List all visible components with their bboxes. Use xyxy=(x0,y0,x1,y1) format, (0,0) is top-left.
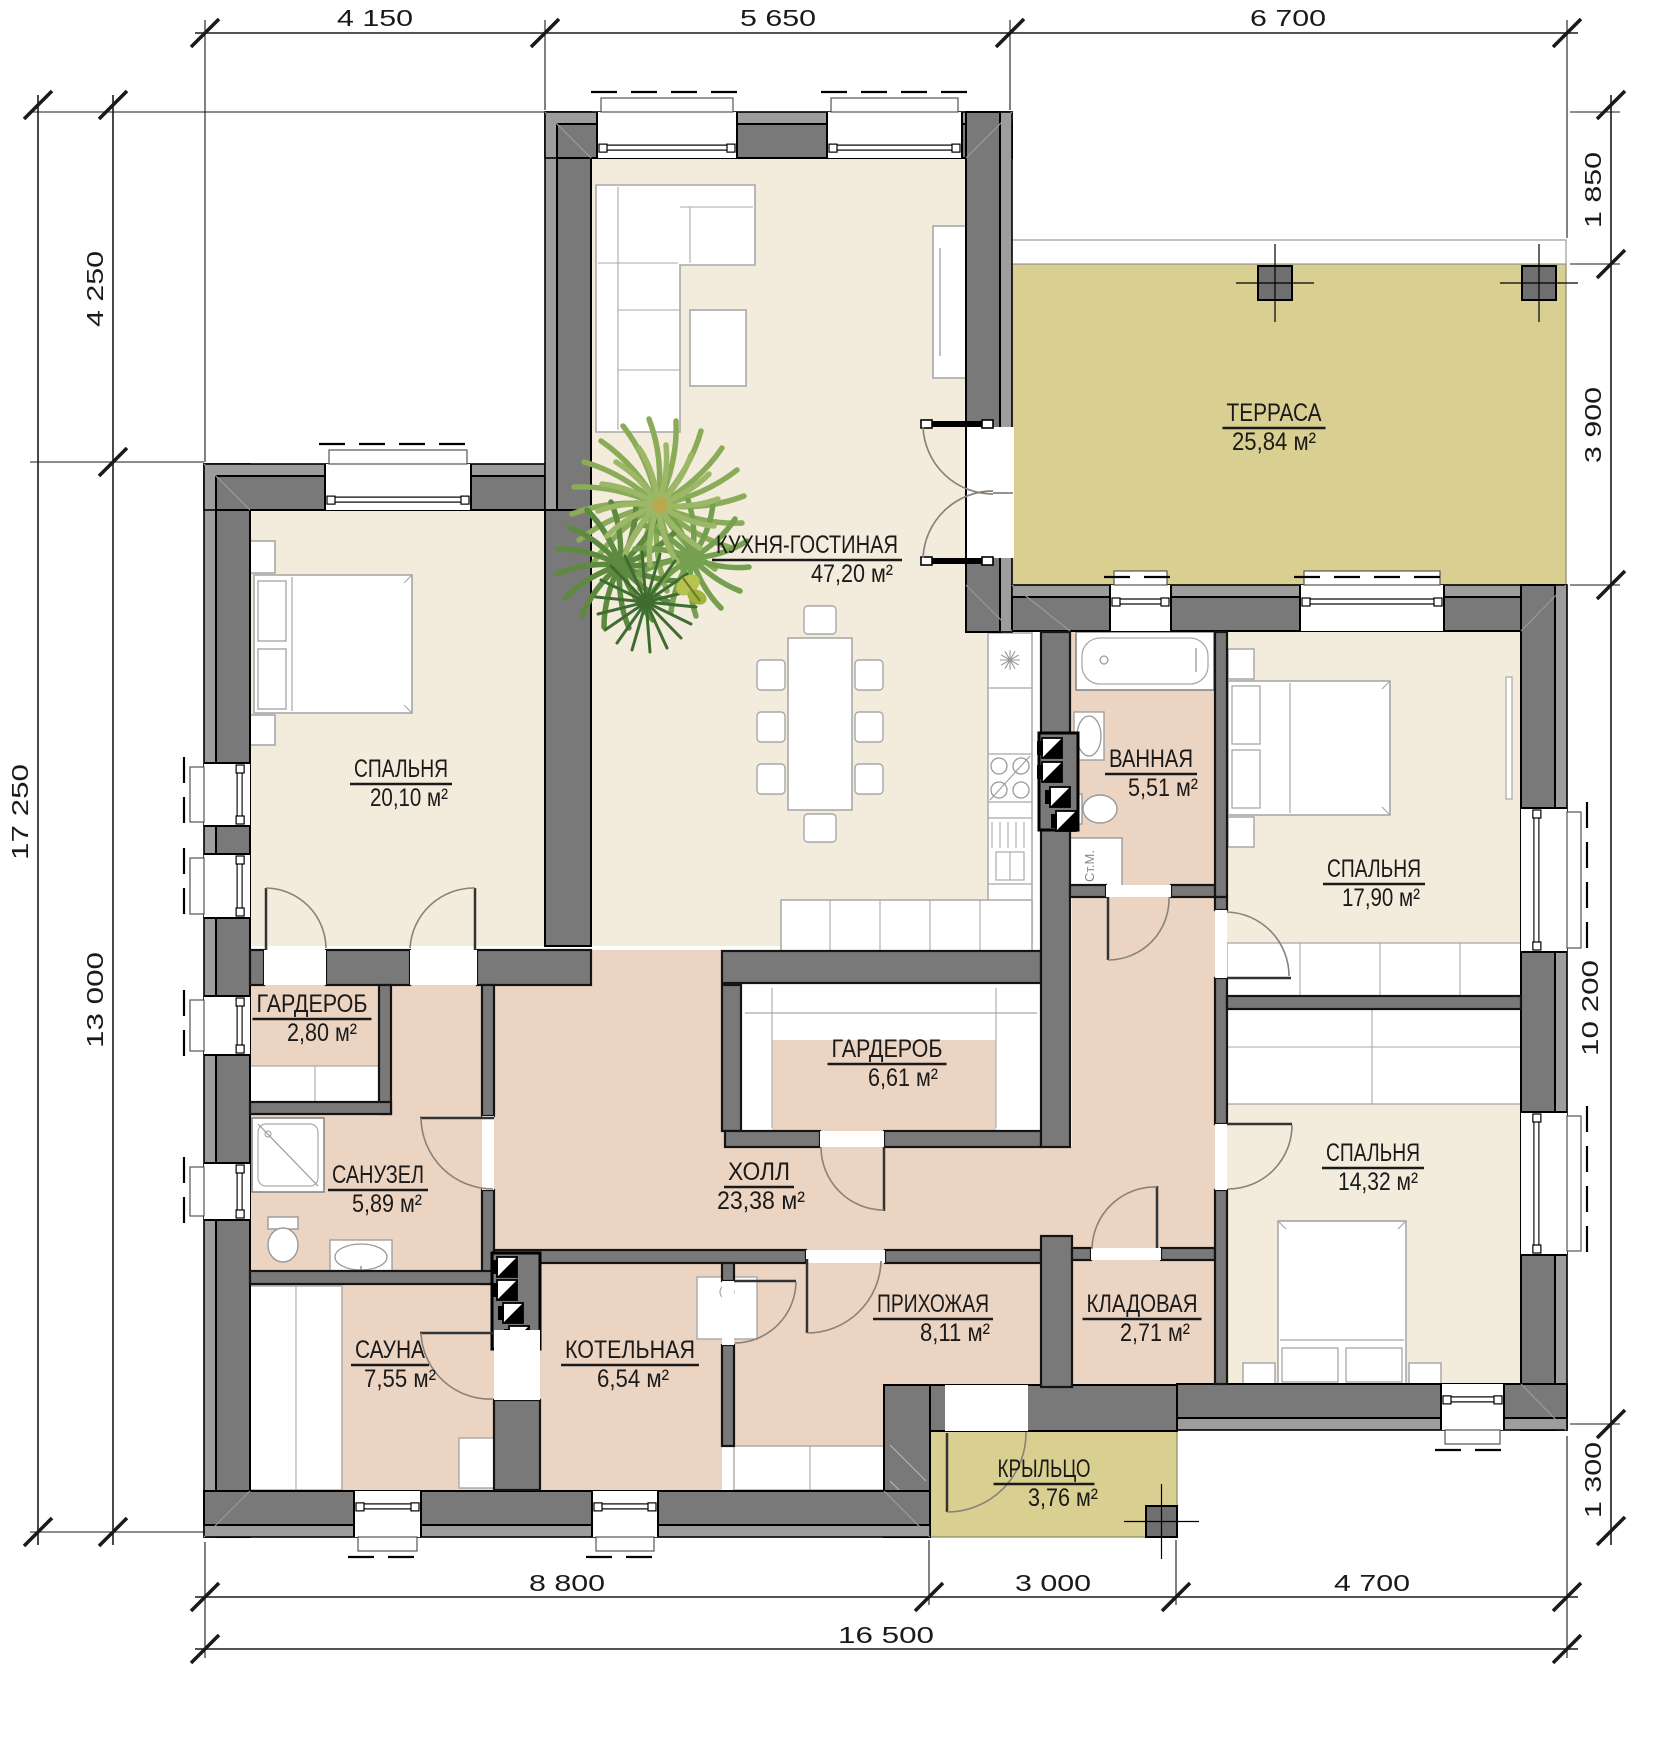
svg-text:8 800: 8 800 xyxy=(529,1570,605,1596)
svg-text:СПАЛЬНЯ: СПАЛЬНЯ xyxy=(354,755,448,783)
svg-text:7,55 м²: 7,55 м² xyxy=(364,1365,436,1393)
svg-text:4 700: 4 700 xyxy=(1334,1570,1410,1596)
svg-text:КОТЕЛЬНАЯ: КОТЕЛЬНАЯ xyxy=(565,1336,695,1364)
svg-text:6,61 м²: 6,61 м² xyxy=(868,1064,938,1092)
svg-text:25,84 м²: 25,84 м² xyxy=(1232,428,1316,456)
svg-text:СПАЛЬНЯ: СПАЛЬНЯ xyxy=(1327,855,1421,883)
svg-text:17 250: 17 250 xyxy=(7,764,33,860)
svg-text:ПРИХОЖАЯ: ПРИХОЖАЯ xyxy=(877,1290,989,1318)
svg-text:5 650: 5 650 xyxy=(740,5,816,31)
svg-text:СПАЛЬНЯ: СПАЛЬНЯ xyxy=(1326,1139,1420,1167)
svg-text:10 200: 10 200 xyxy=(1577,960,1603,1056)
svg-text:2,71 м²: 2,71 м² xyxy=(1120,1319,1190,1347)
svg-text:ТЕРРАСА: ТЕРРАСА xyxy=(1227,399,1322,427)
svg-text:ХОЛЛ: ХОЛЛ xyxy=(728,1158,790,1186)
svg-text:САНУЗЕЛ: САНУЗЕЛ xyxy=(332,1161,424,1189)
svg-text:САУНА: САУНА xyxy=(355,1336,425,1364)
svg-text:3 000: 3 000 xyxy=(1015,1570,1091,1596)
svg-text:8,11 м²: 8,11 м² xyxy=(920,1319,990,1347)
svg-text:Ст.М.: Ст.М. xyxy=(1082,850,1097,882)
svg-text:КЛАДОВАЯ: КЛАДОВАЯ xyxy=(1087,1290,1198,1318)
svg-text:14,32 м²: 14,32 м² xyxy=(1338,1168,1418,1196)
svg-text:1 850: 1 850 xyxy=(1580,152,1606,228)
svg-text:3 900: 3 900 xyxy=(1580,387,1606,463)
svg-text:6 700: 6 700 xyxy=(1250,5,1326,31)
svg-text:ГАРДЕРОБ: ГАРДЕРОБ xyxy=(257,990,368,1018)
svg-text:6,54 м²: 6,54 м² xyxy=(597,1365,669,1393)
svg-text:ГАРДЕРОБ: ГАРДЕРОБ xyxy=(832,1035,943,1063)
svg-text:КУХНЯ-ГОСТИНАЯ: КУХНЯ-ГОСТИНАЯ xyxy=(716,531,898,559)
svg-text:13 000: 13 000 xyxy=(82,952,108,1048)
svg-text:2,80 м²: 2,80 м² xyxy=(287,1019,357,1047)
svg-text:20,10 м²: 20,10 м² xyxy=(370,784,448,812)
svg-text:5,89 м²: 5,89 м² xyxy=(352,1190,422,1218)
svg-text:47,20 м²: 47,20 м² xyxy=(811,560,893,588)
svg-text:КРЫЛЬЦО: КРЫЛЬЦО xyxy=(998,1455,1091,1483)
svg-text:17,90 м²: 17,90 м² xyxy=(1342,884,1420,912)
svg-text:4 250: 4 250 xyxy=(82,251,108,327)
svg-text:3,76 м²: 3,76 м² xyxy=(1028,1484,1098,1512)
svg-text:23,38 м²: 23,38 м² xyxy=(717,1187,805,1215)
svg-text:16 500: 16 500 xyxy=(838,1622,934,1648)
svg-text:4 150: 4 150 xyxy=(337,5,413,31)
svg-text:ВАННАЯ: ВАННАЯ xyxy=(1109,745,1193,773)
svg-text:5,51 м²: 5,51 м² xyxy=(1128,774,1198,802)
svg-text:1 300: 1 300 xyxy=(1580,1442,1606,1518)
